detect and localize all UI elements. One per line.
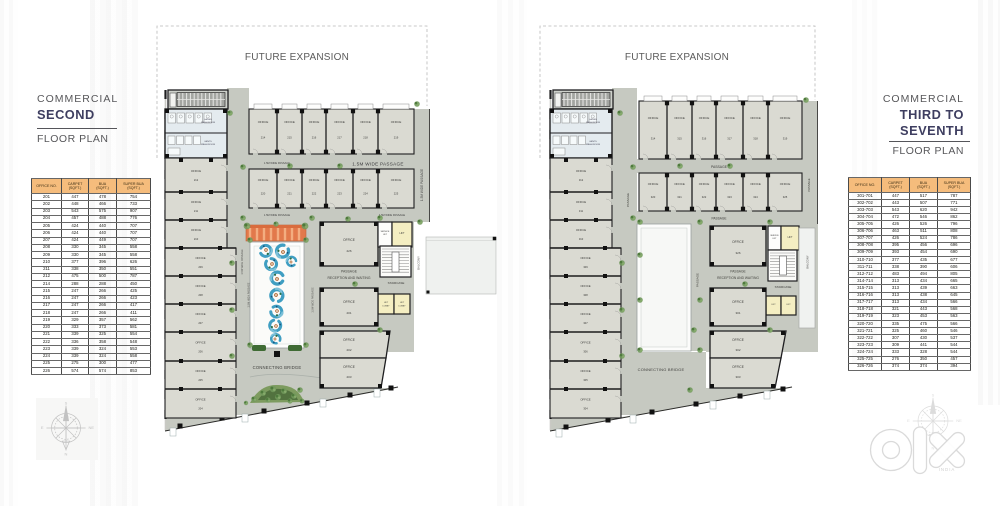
svg-text:PASSAGE: PASSAGE [712,217,727,221]
svg-text:BALCONY: BALCONY [417,256,421,270]
svg-text:323: 323 [727,195,732,199]
svg-text:315: 315 [677,136,682,140]
svg-text:226: 226 [346,249,351,253]
svg-text:321: 321 [677,195,682,199]
svg-text:LIFT: LIFT [384,302,389,304]
svg-text:OFFICE: OFFICE [334,178,345,182]
svg-text:OFFICE: OFFICE [191,228,201,232]
svg-text:1.5M WIDE PASSAGE: 1.5M WIDE PASSAGE [352,162,403,167]
svg-text:LIFT: LIFT [400,302,405,304]
svg-text:OFFICE: OFFICE [195,369,205,373]
svg-text:OFFICE: OFFICE [724,182,735,186]
svg-text:WASH ROOM: WASH ROOM [586,121,600,124]
svg-text:225: 225 [394,192,399,196]
svg-text:OFFICE: OFFICE [284,120,295,124]
svg-text:224: 224 [363,192,368,196]
svg-text:203: 203 [346,375,351,379]
svg-text:209: 209 [198,265,203,269]
svg-text:PASSAGE: PASSAGE [626,193,630,207]
svg-text:E: E [41,425,44,430]
svg-text:4.5M WIDE PASSAGE: 4.5M WIDE PASSAGE [379,213,405,217]
svg-text:OFFICE: OFFICE [191,200,201,204]
svg-text:215: 215 [287,136,292,140]
svg-text:OFFICE: OFFICE [750,182,761,186]
svg-text:305: 305 [583,378,588,382]
svg-text:214: 214 [261,136,266,140]
svg-text:OFFICE: OFFICE [699,182,710,186]
svg-text:OFFICE: OFFICE [732,240,744,244]
svg-text:LIFT: LIFT [400,232,405,235]
svg-text:RECEPTION AND WAITING: RECEPTION AND WAITING [717,276,759,280]
svg-text:202: 202 [346,348,351,352]
svg-text:FUTURE EXPANSION: FUTURE EXPANSION [245,52,349,63]
svg-text:PASSAGE: PASSAGE [730,270,746,274]
svg-text:306: 306 [583,349,588,353]
svg-text:S: S [932,393,935,398]
svg-text:302: 302 [735,348,740,352]
svg-text:OFFICE: OFFICE [576,228,586,232]
svg-text:311: 311 [579,209,584,213]
svg-text:OFFICE: OFFICE [674,182,685,186]
svg-text:CONNECTING BRIDGE: CONNECTING BRIDGE [638,367,685,372]
svg-text:OFFICE: OFFICE [195,312,205,316]
svg-text:322: 322 [702,195,707,199]
svg-text:OFFICE: OFFICE [674,116,685,120]
svg-text:OFFICE: OFFICE [780,182,791,186]
svg-text:326: 326 [735,251,740,255]
svg-text:S: S [65,401,68,406]
svg-text:211: 211 [194,209,199,213]
svg-text:314: 314 [651,136,656,140]
svg-text:OFFICE: OFFICE [732,300,744,304]
svg-text:208: 208 [198,293,203,297]
svg-text:1.5M WIDE PASSAGE: 1.5M WIDE PASSAGE [264,213,290,217]
svg-text:324: 324 [753,195,758,199]
svg-text:220: 220 [261,192,266,196]
svg-text:OFFICE: OFFICE [258,178,269,182]
svg-text:310: 310 [579,237,584,241]
svg-text:OFFICE: OFFICE [343,338,355,342]
svg-text:1.5M WIDE PASSAGE: 1.5M WIDE PASSAGE [312,287,315,313]
svg-text:WASH ROOM: WASH ROOM [586,143,600,146]
svg-text:LADIES: LADIES [204,118,212,121]
svg-text:INDIA: INDIA [939,467,956,472]
svg-text:222: 222 [312,192,317,196]
svg-text:OFFICE: OFFICE [343,238,355,242]
svg-text:303: 303 [735,375,740,379]
svg-text:WASH ROOM: WASH ROOM [201,121,215,124]
svg-text:OFFICE: OFFICE [648,182,659,186]
svg-text:218: 218 [363,136,368,140]
svg-text:OFFICE: OFFICE [580,312,590,316]
svg-text:OFFICE: OFFICE [391,120,402,124]
svg-text:LOBBY: LOBBY [399,306,407,308]
svg-text:N: N [65,452,68,457]
svg-text:OFFICE: OFFICE [780,116,791,120]
svg-text:SERVICE: SERVICE [770,235,779,237]
svg-text:OFFICE: OFFICE [258,120,269,124]
svg-text:1.5M WIDE PASSAGE: 1.5M WIDE PASSAGE [420,169,424,201]
svg-text:325: 325 [783,195,788,199]
svg-text:320: 320 [651,195,656,199]
svg-text:205: 205 [198,378,203,382]
svg-text:OFFICE: OFFICE [580,397,590,401]
svg-text:GENTS: GENTS [204,141,212,143]
svg-text:212: 212 [194,178,199,182]
svg-text:OFFICE: OFFICE [699,116,710,120]
svg-text:OFFICE: OFFICE [195,397,205,401]
svg-text:STAIRCASE: STAIRCASE [775,285,792,289]
svg-text:PASSAGE: PASSAGE [341,270,358,274]
svg-text:OFFICE: OFFICE [195,256,205,260]
svg-text:OFFICE: OFFICE [580,256,590,260]
svg-text:PASSAGE: PASSAGE [696,273,700,287]
svg-text:OFFICE: OFFICE [750,116,761,120]
svg-text:304: 304 [583,406,588,410]
svg-text:OFFICE: OFFICE [343,300,355,304]
svg-text:OFFICE: OFFICE [360,120,371,124]
svg-text:NE: NE [88,425,94,430]
svg-text:312: 312 [579,178,584,182]
svg-text:OFFICE: OFFICE [191,169,201,173]
svg-text:SERVICE: SERVICE [381,231,390,233]
svg-text:LADIES: LADIES [589,118,597,121]
svg-text:219: 219 [394,136,399,140]
svg-text:307: 307 [583,321,588,325]
svg-text:201: 201 [346,311,351,315]
svg-text:OFFICE: OFFICE [576,169,586,173]
svg-text:OFFICE: OFFICE [284,178,295,182]
svg-text:210: 210 [194,237,199,241]
svg-text:OFFICE: OFFICE [360,178,371,182]
svg-text:OFFICE: OFFICE [195,284,205,288]
svg-text:OFFICE: OFFICE [391,178,402,182]
svg-text:RECEPTION AND WAITING: RECEPTION AND WAITING [327,276,370,280]
svg-text:OFFICE: OFFICE [309,178,320,182]
svg-text:PASSAGE: PASSAGE [711,165,728,169]
svg-text:OFFICE: OFFICE [648,116,659,120]
svg-text:316: 316 [702,136,707,140]
svg-text:207: 207 [198,321,203,325]
svg-text:OFFICE: OFFICE [309,120,320,124]
svg-text:LOBBY: LOBBY [383,306,391,308]
svg-text:309: 309 [583,265,588,269]
svg-text:308: 308 [583,293,588,297]
svg-text:OFFICE: OFFICE [732,338,744,342]
svg-text:BALCONY: BALCONY [806,255,810,269]
svg-text:OFFICE: OFFICE [580,340,590,344]
svg-text:319: 319 [783,136,788,140]
svg-text:223: 223 [337,192,342,196]
svg-text:206: 206 [198,349,203,353]
svg-text:GENTS: GENTS [589,141,597,143]
svg-text:STAIRCASE: STAIRCASE [388,281,405,285]
svg-text:217: 217 [337,136,342,140]
svg-text:301: 301 [735,311,740,315]
svg-text:221: 221 [287,192,292,196]
svg-text:OFFICE: OFFICE [195,340,205,344]
svg-text:204: 204 [198,406,203,410]
svg-text:OFFICE: OFFICE [576,200,586,204]
svg-text:OFFICE: OFFICE [334,120,345,124]
svg-text:NE: NE [956,418,962,423]
svg-text:WASH ROOM: WASH ROOM [201,143,215,146]
svg-text:CONNECTING BRIDGE: CONNECTING BRIDGE [253,365,302,370]
svg-text:FUTURE EXPANSION: FUTURE EXPANSION [625,52,729,63]
svg-text:OFFICE: OFFICE [732,365,744,369]
svg-text:OFFICE: OFFICE [580,284,590,288]
svg-text:OFFICE: OFFICE [724,116,735,120]
svg-text:318: 318 [753,136,758,140]
svg-text:216: 216 [312,136,317,140]
svg-text:LIFT: LIFT [788,237,793,239]
svg-text:OFFICE: OFFICE [343,365,355,369]
svg-text:PASSAGE: PASSAGE [807,178,811,191]
svg-text:317: 317 [727,136,732,140]
svg-text:E: E [907,418,910,423]
svg-text:OFFICE: OFFICE [580,369,590,373]
svg-text:1.5M HIGH PASSAGE: 1.5M HIGH PASSAGE [248,282,251,307]
svg-text:1.5M WIDE PASSAGE: 1.5M WIDE PASSAGE [264,161,290,165]
